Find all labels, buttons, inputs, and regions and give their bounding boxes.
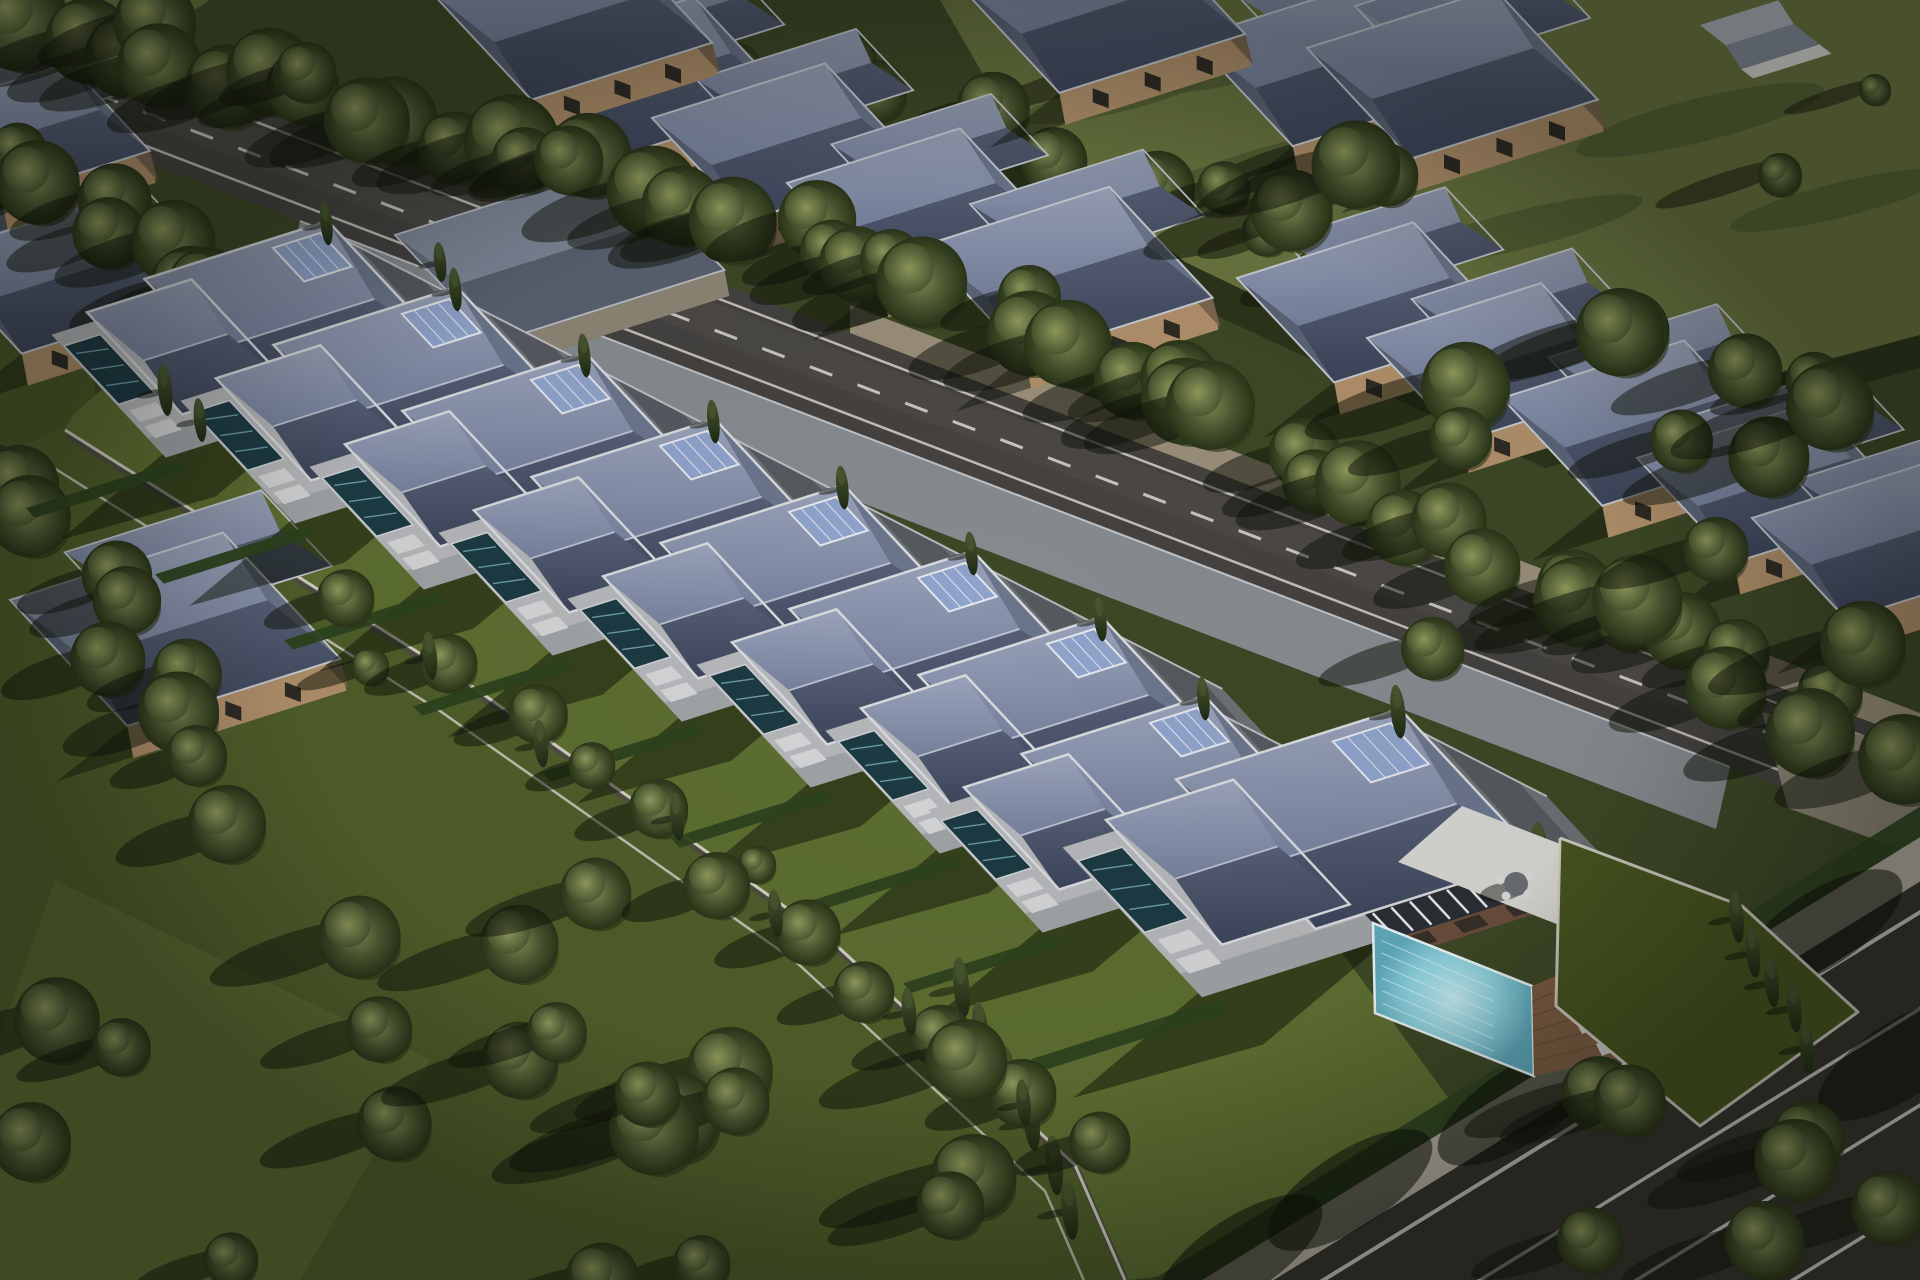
rendered-scene: [0, 0, 1920, 1280]
aerial-architectural-rendering: [0, 0, 1920, 1280]
vignette-overlay: [0, 0, 1920, 1280]
